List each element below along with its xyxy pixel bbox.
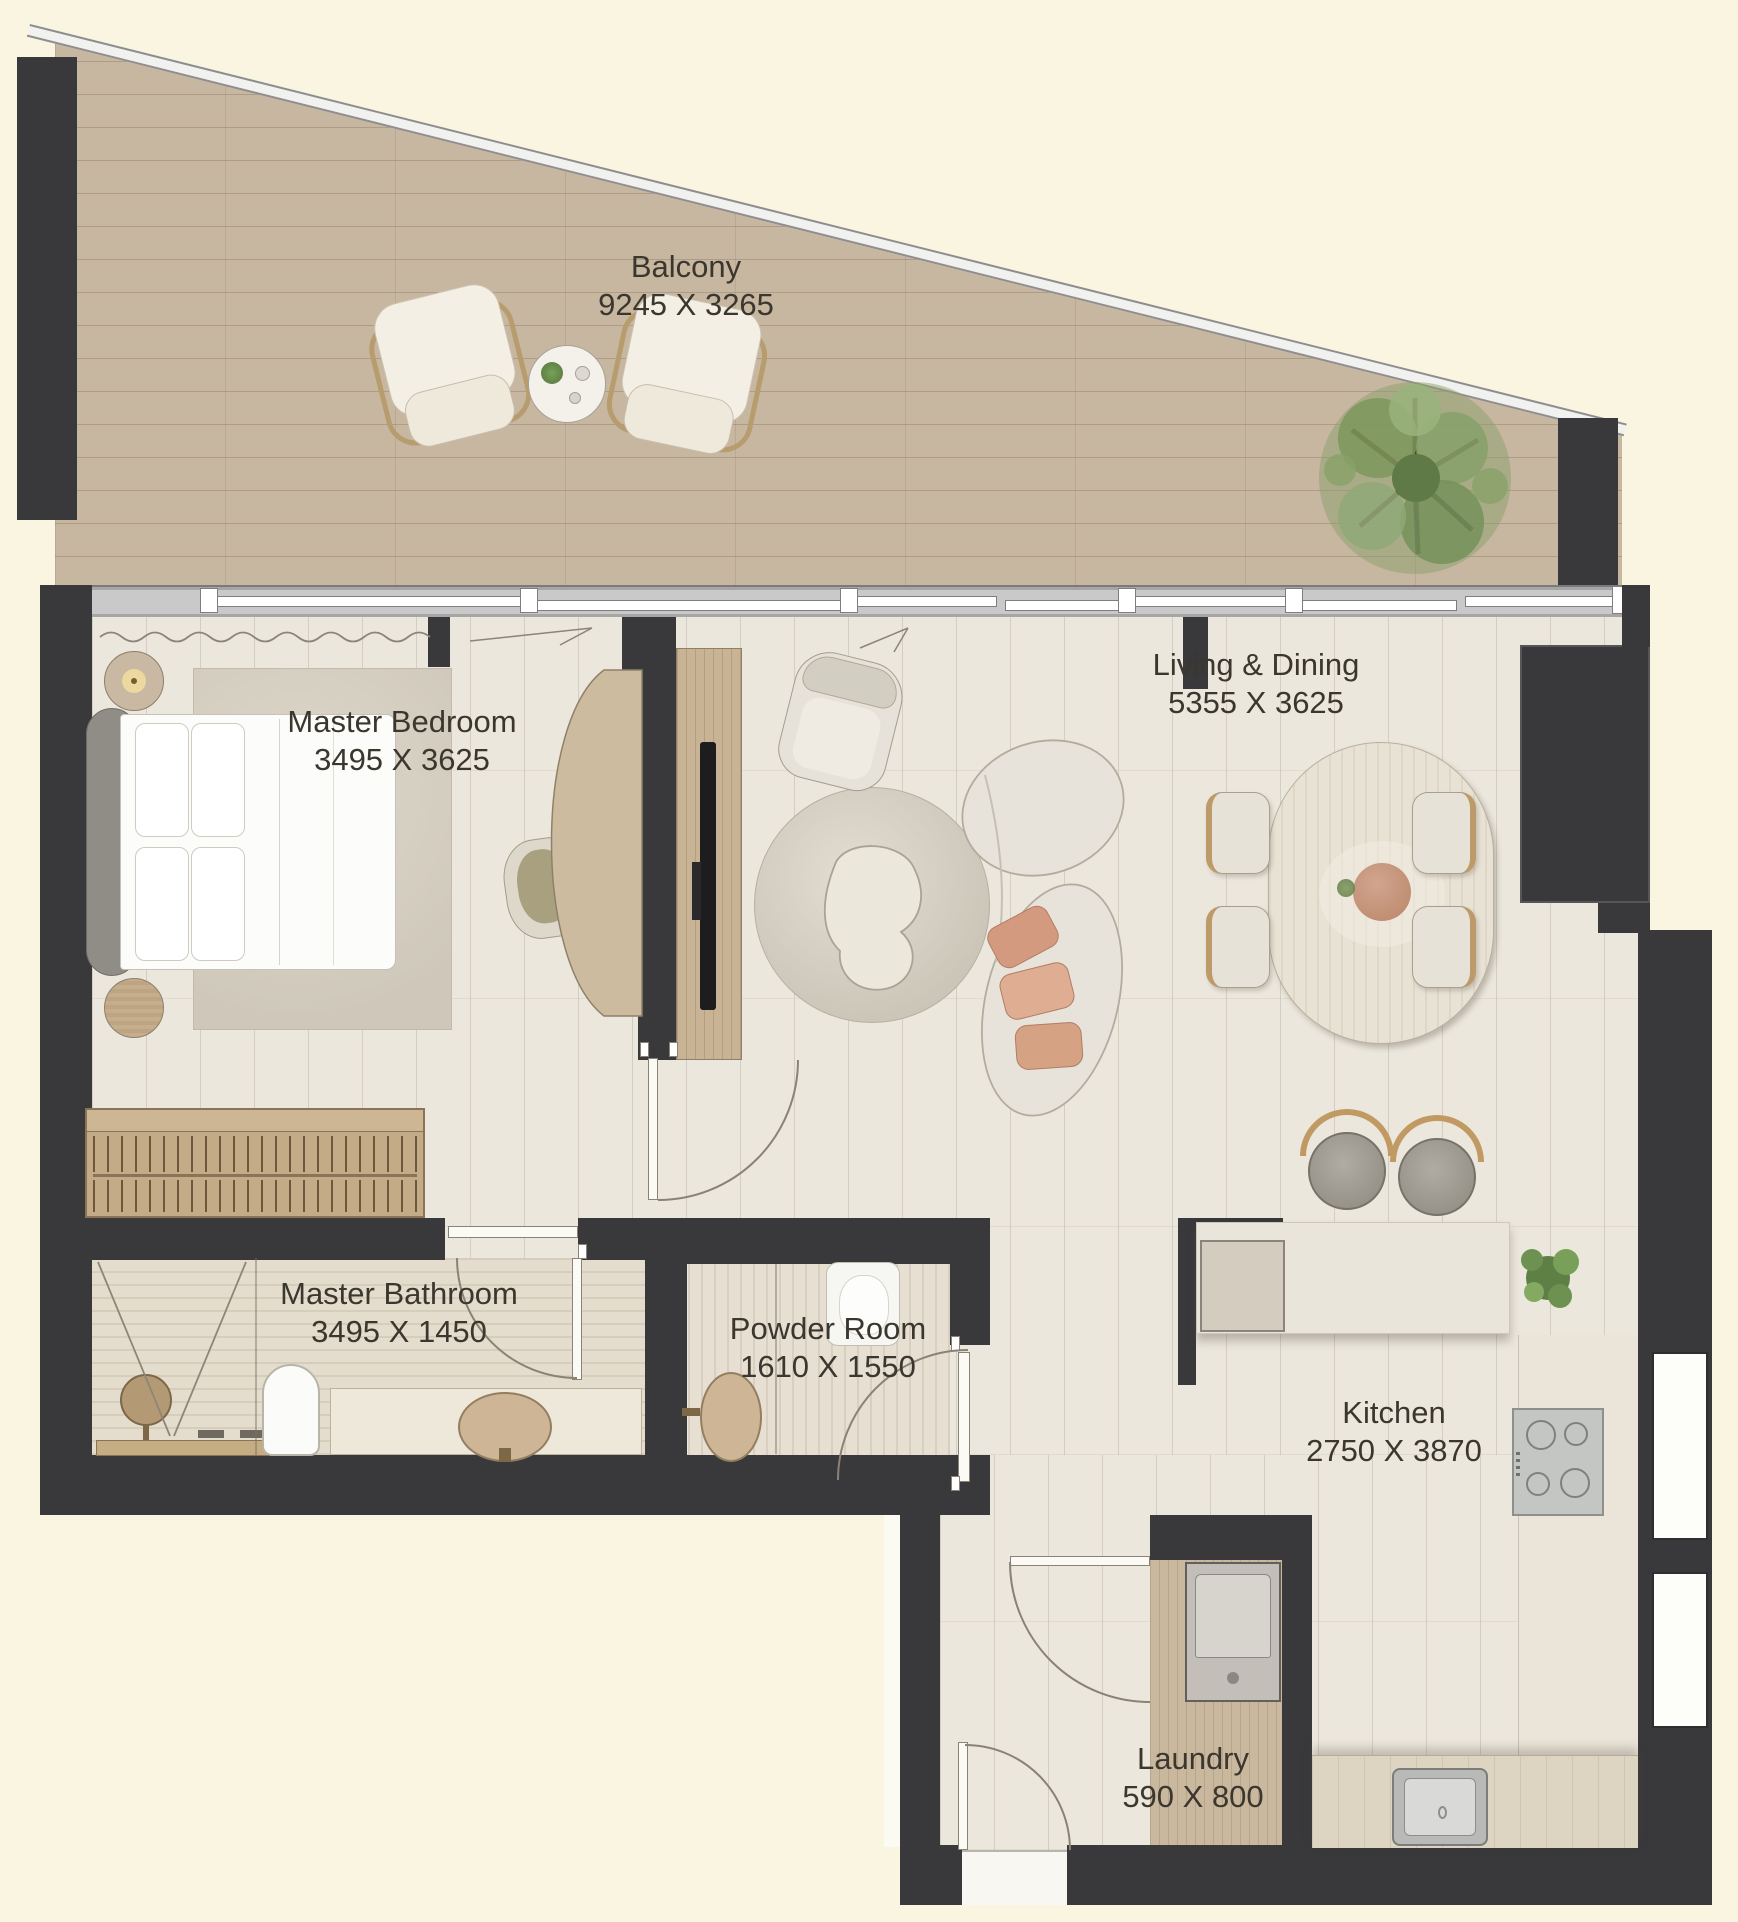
dining-table xyxy=(1268,742,1494,1044)
bed-pillow xyxy=(135,847,189,961)
right-wall-shaft xyxy=(1652,1352,1708,1540)
bed-pillow xyxy=(135,723,189,837)
vanity-tap xyxy=(499,1448,511,1462)
window-glazing xyxy=(1465,596,1622,607)
burner-icon xyxy=(1526,1420,1556,1450)
room-dims: 3495 X 1450 xyxy=(280,1313,518,1351)
door-hinge xyxy=(578,1244,587,1259)
bedroom-door-leaf xyxy=(648,1058,658,1200)
window-glazing xyxy=(1297,600,1457,611)
wardrobe-rail xyxy=(93,1174,417,1177)
right-wall-shaft xyxy=(1652,1572,1708,1728)
lamp-bulb xyxy=(131,678,137,684)
window-end-stub xyxy=(1622,585,1650,647)
room-name: Master Bedroom xyxy=(287,703,516,741)
bottom-wall xyxy=(1067,1845,1640,1905)
door-hinge xyxy=(951,1336,960,1351)
table-cup xyxy=(575,366,590,381)
burner-icon xyxy=(1560,1468,1590,1498)
room-dims: 590 X 800 xyxy=(1122,1778,1263,1816)
washer xyxy=(1185,1562,1281,1702)
bed-pillow xyxy=(191,723,245,837)
table-cup xyxy=(569,392,581,404)
powder-top-wall xyxy=(687,1218,990,1264)
dining-structural-block xyxy=(1520,645,1650,903)
room-name: Kitchen xyxy=(1306,1394,1482,1432)
dining-chair xyxy=(1412,906,1476,988)
window-mullion xyxy=(1285,588,1303,613)
shower-head-icon xyxy=(120,1374,172,1426)
room-dims: 9245 X 3265 xyxy=(598,286,774,324)
kitchen-right-counter xyxy=(1518,1335,1638,1760)
wardrobe-shelf xyxy=(87,1110,423,1132)
room-dims: 1610 X 1550 xyxy=(730,1348,926,1386)
shower-bench xyxy=(96,1440,268,1456)
entry-threshold xyxy=(962,1850,1067,1905)
shower-divider xyxy=(255,1258,257,1455)
living-rug xyxy=(754,787,990,1023)
balcony-left-wall xyxy=(17,57,77,520)
floor-plan: Balcony 9245 X 3265 Master Bedroom 3495 … xyxy=(0,0,1738,1922)
balcony-right-wall xyxy=(1558,418,1618,588)
bathroom-door-leaf xyxy=(572,1258,582,1380)
centerpiece-bowl xyxy=(1353,863,1411,921)
cooktop xyxy=(1512,1408,1604,1516)
kitchen-tall-unit xyxy=(1200,1240,1285,1332)
shower-valve xyxy=(198,1430,224,1438)
window-mullion xyxy=(840,588,858,613)
room-name: Living & Dining xyxy=(1153,646,1360,684)
washer-knob xyxy=(1227,1672,1239,1684)
exterior-edge-highlight xyxy=(884,1515,900,1847)
powder-left-wall xyxy=(645,1218,687,1515)
laundry-right-wall xyxy=(1282,1558,1312,1848)
room-dims: 3495 X 3625 xyxy=(287,741,516,779)
balcony-floor xyxy=(55,20,1622,590)
burner-icon xyxy=(1526,1472,1550,1496)
dining-block-step xyxy=(1598,903,1650,933)
bedroom-bathroom-wall xyxy=(578,1218,648,1260)
bedside-lamp-icon xyxy=(104,651,164,711)
window-glazing xyxy=(855,596,997,607)
balcony-side-table xyxy=(528,345,606,423)
bathroom-door-leaf xyxy=(448,1226,578,1238)
window-mullion xyxy=(520,588,538,613)
window-glazing xyxy=(535,600,847,611)
partition-notch xyxy=(622,617,638,672)
dining-chair xyxy=(1412,792,1476,874)
room-name: Master Bathroom xyxy=(280,1275,518,1313)
kitchen-jut-wall xyxy=(1178,1218,1196,1385)
duvet-fold xyxy=(279,719,280,965)
laundry-door-leaf xyxy=(1010,1556,1150,1566)
bedroom-stool xyxy=(104,978,164,1038)
room-dims: 5355 X 3625 xyxy=(1153,684,1360,722)
room-name: Powder Room xyxy=(730,1310,926,1348)
table-plant xyxy=(541,362,563,384)
wardrobe-hangers xyxy=(93,1180,417,1212)
room-name: Laundry xyxy=(1122,1740,1263,1778)
master-bathroom-label: Master Bathroom 3495 X 1450 xyxy=(280,1275,518,1351)
bedroom-bathroom-wall xyxy=(92,1218,445,1260)
powder-right-wall xyxy=(950,1218,990,1345)
door-hinge xyxy=(669,1042,678,1057)
dining-chair xyxy=(1206,792,1270,874)
wardrobe-hangers xyxy=(93,1136,417,1172)
burner-icon xyxy=(1564,1422,1588,1446)
partition-wall xyxy=(638,617,676,1060)
dining-chair xyxy=(1206,906,1270,988)
bottom-left-wall xyxy=(40,1455,990,1515)
chair-cushion xyxy=(513,846,575,927)
window-glazing xyxy=(1130,596,1287,607)
washer-door xyxy=(1195,1574,1271,1658)
left-wall xyxy=(40,585,92,1515)
powder-door-leaf xyxy=(958,1352,970,1482)
toilet xyxy=(262,1364,320,1456)
window-mullion xyxy=(1118,588,1136,613)
sink-drain xyxy=(1438,1806,1447,1819)
balcony-label: Balcony 9245 X 3265 xyxy=(598,248,774,324)
entry-door-leaf xyxy=(958,1742,968,1850)
armchair-seat xyxy=(789,694,884,783)
living-dining-label: Living & Dining 5355 X 3625 xyxy=(1153,646,1360,722)
centerpiece-sprig xyxy=(1337,879,1355,897)
window-mullion xyxy=(200,588,218,613)
tv-bracket xyxy=(692,862,701,920)
powder-room-label: Powder Room 1610 X 1550 xyxy=(730,1310,926,1386)
window-glazing xyxy=(210,596,527,607)
kitchen-sink xyxy=(1392,1768,1488,1846)
window-glazing xyxy=(1005,600,1122,611)
master-bedroom-label: Master Bedroom 3495 X 3625 xyxy=(287,703,516,779)
cooktop-controls xyxy=(1516,1450,1520,1476)
counter-stool xyxy=(1398,1138,1476,1216)
room-dims: 2750 X 3870 xyxy=(1306,1432,1482,1470)
window-stub xyxy=(428,617,450,667)
bed-pillow xyxy=(191,847,245,961)
door-hinge xyxy=(640,1042,649,1057)
kitchen-label: Kitchen 2750 X 3870 xyxy=(1306,1394,1482,1470)
door-hinge xyxy=(951,1476,960,1491)
laundry-top-wall xyxy=(1150,1515,1312,1560)
room-name: Balcony xyxy=(598,248,774,286)
tv-icon xyxy=(700,742,716,1010)
counter-stool xyxy=(1308,1132,1386,1210)
wardrobe xyxy=(85,1108,425,1218)
powder-tap xyxy=(682,1408,700,1416)
bottom-wall xyxy=(900,1845,962,1905)
laundry-label: Laundry 590 X 800 xyxy=(1122,1740,1263,1816)
